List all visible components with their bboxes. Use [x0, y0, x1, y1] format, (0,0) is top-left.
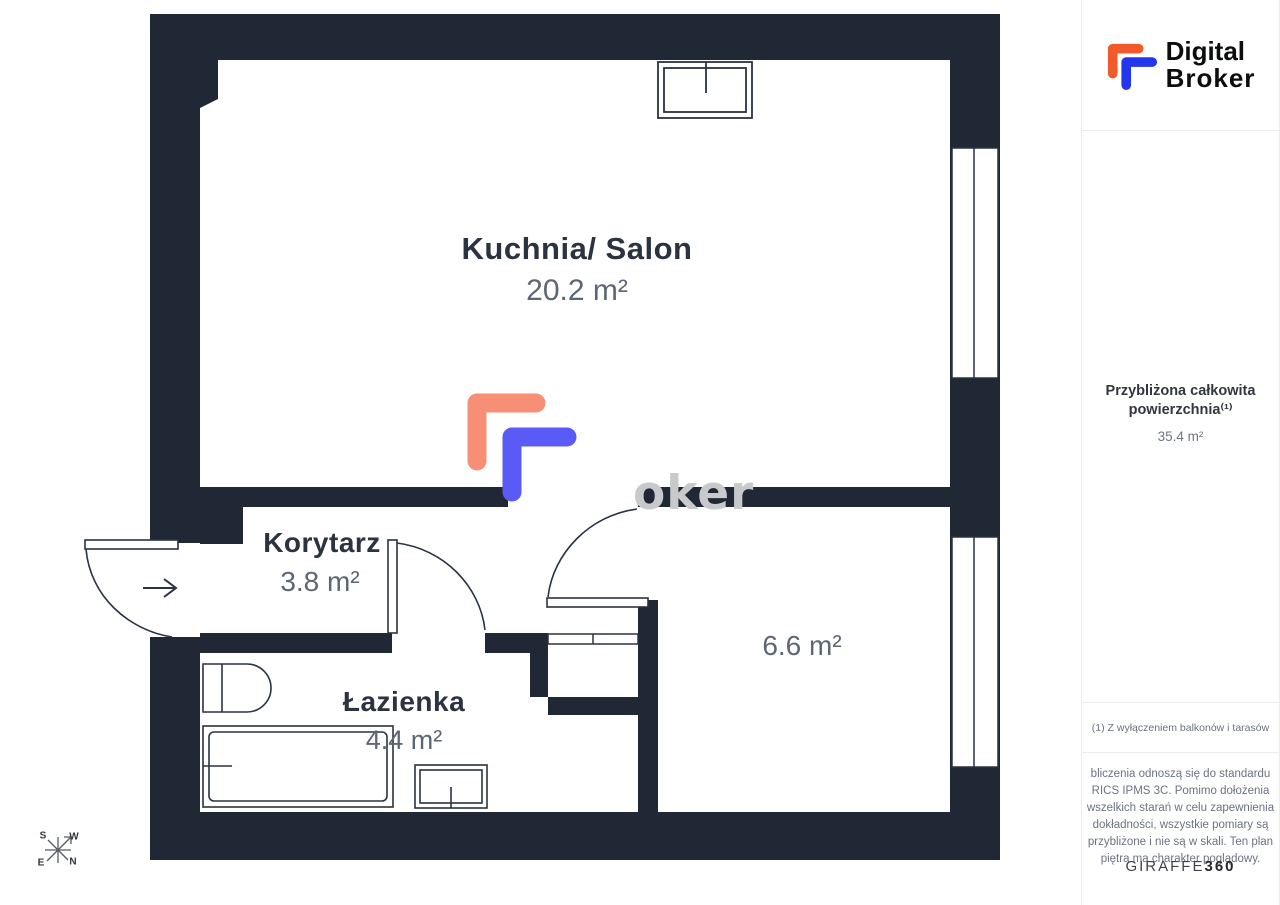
- disclaimer-line: dokładności, wszystkie pomiary są: [1082, 817, 1279, 834]
- brand-logo-icon: [1106, 38, 1158, 92]
- room-area-kitchen: 20.2 m²: [526, 274, 628, 308]
- bathtub: [203, 726, 393, 807]
- floor-plan: oker Kuchnia/ Salon 20.2 m² Korytarz 3.8…: [0, 0, 1080, 905]
- total-area-value: 35.4 m²: [1082, 429, 1279, 444]
- compass-letter-sw: E: [38, 858, 45, 869]
- room-area-bathroom: 4.4 m²: [366, 725, 443, 756]
- room-area-second-room: 6.6 m²: [762, 630, 841, 662]
- giraffe360-bold: 360: [1204, 858, 1235, 875]
- sidebar: Digital Broker Przybliżona całkowita pow…: [1081, 0, 1280, 905]
- disclaimer-line: RICS IPMS 3C. Pomimo dołożenia: [1082, 783, 1279, 800]
- compass-icon: [45, 837, 71, 863]
- compass-letter-ne: W: [69, 832, 78, 843]
- brand-name-line2: Broker: [1166, 65, 1256, 92]
- entrance-arrow-icon: [143, 579, 176, 597]
- watermark-logo-icon: [477, 403, 567, 492]
- total-area-title-line2: powierzchnia⁽¹⁾: [1082, 401, 1279, 420]
- disclaimer-line: wszelkich starań w celu zapewnienia: [1082, 800, 1279, 817]
- watermark-text: oker: [633, 466, 754, 521]
- disclaimer-line: bliczenia odnoszą się do standardu: [1082, 766, 1279, 783]
- room-area-hallway: 3.8 m²: [280, 566, 359, 598]
- kitchen-vent-fixture: [658, 62, 752, 118]
- room-label-hallway: Korytarz: [263, 527, 381, 559]
- second-room-door: [547, 509, 648, 607]
- room-label-kitchen: Kuchnia/ Salon: [462, 231, 693, 267]
- toilet: [203, 664, 271, 712]
- room-label-bathroom: Łazienka: [343, 686, 465, 718]
- giraffe360-brand: GIRAFFE360: [1082, 858, 1279, 875]
- brand-name-line1: Digital: [1166, 38, 1256, 65]
- disclaimer-line: przybliżone i nie są w skali. Ten plan: [1082, 834, 1279, 851]
- compass-letter-nw: S: [40, 831, 47, 842]
- brand-logo-text: Digital Broker: [1166, 38, 1256, 92]
- page: oker Kuchnia/ Salon 20.2 m² Korytarz 3.8…: [0, 0, 1280, 905]
- brand-logo: Digital Broker: [1082, 0, 1279, 131]
- floor-plan-drawing: [0, 0, 1080, 905]
- compass-letter-se: N: [69, 857, 76, 868]
- window-right-upper: [952, 148, 998, 378]
- total-area-block: Przybliżona całkowita powierzchnia⁽¹⁾ 35…: [1082, 382, 1279, 444]
- window-right-lower: [952, 537, 998, 767]
- giraffe360-regular: GIRAFFE: [1125, 858, 1204, 875]
- total-area-title-line1: Przybliżona całkowita: [1082, 382, 1279, 401]
- sink: [415, 765, 487, 808]
- footnote-text: (1) Z wyłączeniem balkonów i tarasów: [1092, 722, 1269, 734]
- disclaimer-block: bliczenia odnoszą się do standardu RICS …: [1082, 766, 1279, 868]
- internal-window: [548, 634, 638, 644]
- footnote-block: (1) Z wyłączeniem balkonów i tarasów: [1082, 702, 1279, 753]
- bathroom-door: [388, 540, 485, 633]
